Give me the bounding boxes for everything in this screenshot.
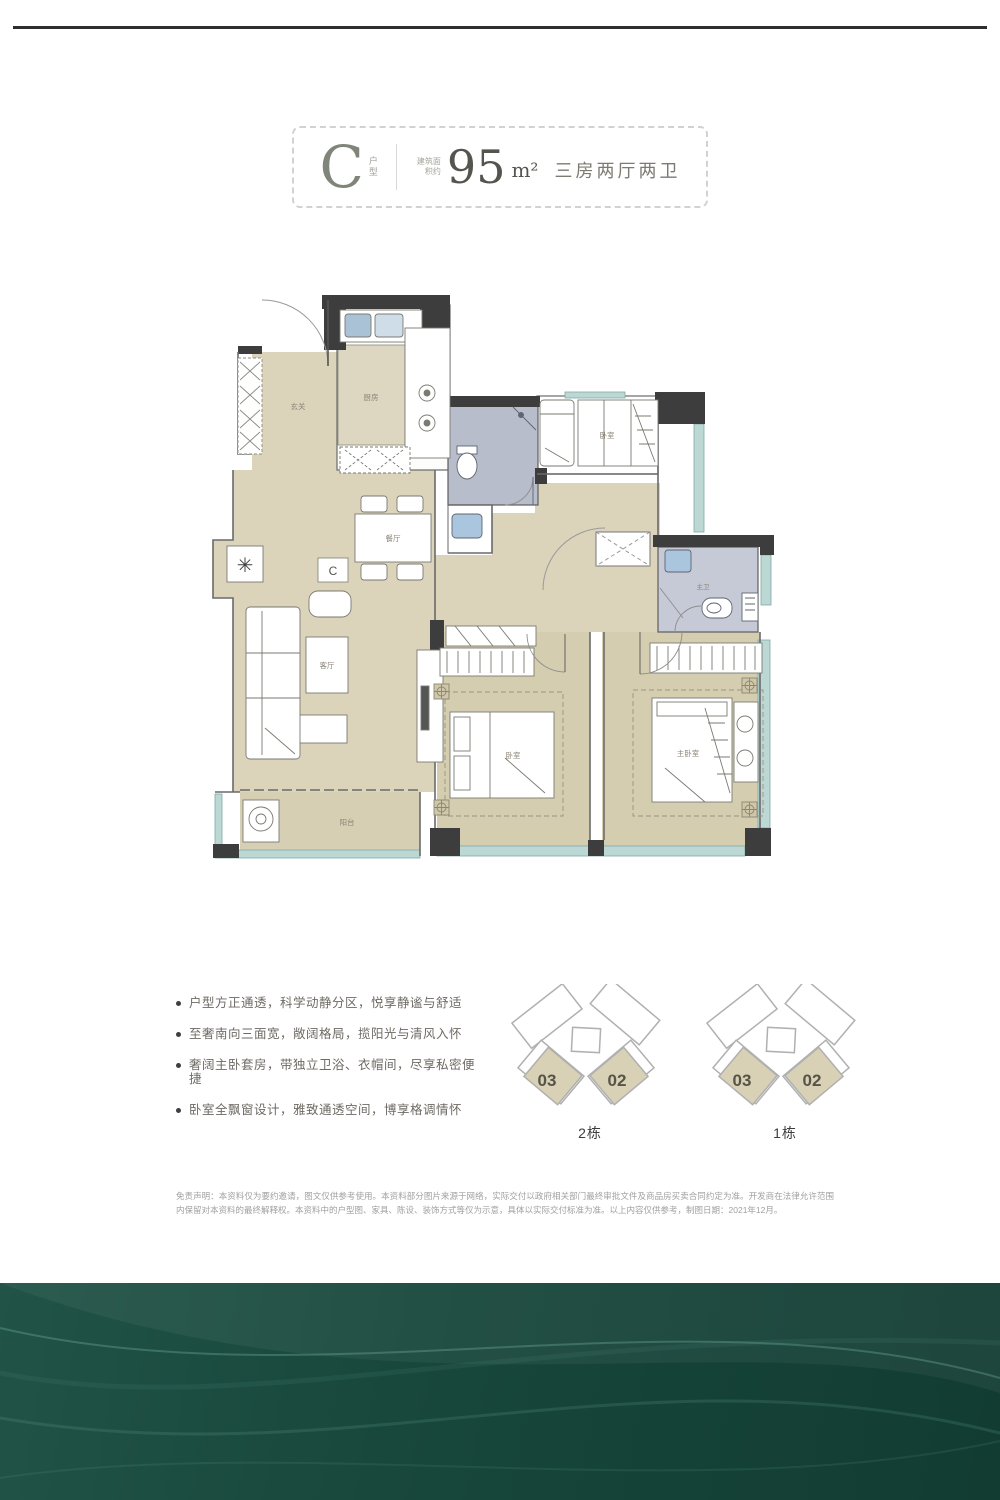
bullet-icon [176, 1108, 181, 1113]
feature-text: 户型方正通透，科学动静分区，悦享静谧与舒适 [189, 996, 462, 1010]
brochure-page: C 户型 建筑面积约 95 m² 三房两厅两卫 [0, 0, 1000, 1500]
washbasin-icon-2 [665, 550, 691, 572]
keyplan-svg: 03 02 [495, 984, 685, 1114]
floor-plan-svg: ✳ [205, 288, 785, 878]
bench-icon [293, 715, 347, 743]
bullet-icon [176, 1032, 181, 1037]
single-bed-icon [540, 400, 574, 466]
disclaimer-text: 免责声明：本资料仅为要约邀请，图文仅供参考使用。本资料部分图片来源于网络，实际交… [176, 1189, 834, 1217]
label-bedroom-mid: 卧室 [506, 750, 521, 760]
label-master-bath: 主卫 [697, 582, 711, 591]
shaft-box [596, 532, 650, 566]
title-divider [396, 144, 397, 190]
window-balcony-bottom [215, 850, 420, 858]
feature-text: 至奢南向三面宽，敞阔格局，揽阳光与清风入怀 [189, 1027, 462, 1041]
sink-icon [345, 314, 371, 337]
closet-icon [578, 400, 658, 466]
feature-item: 卧室全飘窗设计，雅致通透空间，博享格调情怀 [176, 1103, 486, 1117]
area-value: 95 [447, 144, 506, 190]
unit-number-02: 02 [803, 1071, 822, 1090]
layout-description: 三房两厅两卫 [554, 157, 680, 183]
keyplan-building-2: 03 02 2栋 [495, 984, 685, 1143]
unit-number-03: 03 [733, 1071, 752, 1090]
feature-text: 卧室全飘窗设计，雅致通透空间，博享格调情怀 [189, 1103, 462, 1117]
window-right-top [694, 424, 704, 532]
feature-item: 户型方正通透，科学动静分区，悦享静谧与舒适 [176, 996, 486, 1010]
label-bedroom-top: 卧室 [600, 430, 615, 440]
keyplan-caption: 2栋 [495, 1123, 685, 1143]
label-unit-marker: C [329, 564, 338, 578]
desk-icon [734, 702, 758, 782]
sofa-icon [246, 607, 300, 759]
unit-number-02: 02 [608, 1071, 627, 1090]
window-bedroom-top [565, 392, 625, 398]
label-balcony: 阳台 [340, 817, 355, 827]
washbasin-icon [452, 514, 482, 538]
chair-icon [361, 496, 387, 512]
footer-waves [0, 1283, 1000, 1500]
unit-number-03: 03 [538, 1071, 557, 1090]
shoe-cabinet [238, 358, 262, 454]
label-kitchen: 厨房 [364, 392, 379, 402]
keyplan-svg: 03 02 [690, 984, 880, 1114]
label-dining: 餐厅 [386, 534, 401, 543]
area-prefix-label: 建筑面积约 [415, 157, 441, 177]
area-unit: m² [511, 158, 538, 182]
feature-list: 户型方正通透，科学动静分区，悦享静谧与舒适 至奢南向三面宽，敞阔格局，揽阳光与清… [176, 996, 486, 1134]
bullet-icon [176, 1001, 181, 1006]
shower-icon [519, 413, 524, 418]
snowflake-icon: ✳ [237, 555, 254, 577]
armchair-icon [309, 591, 351, 617]
label-master-bedroom: 主卧室 [677, 748, 700, 758]
floor-plan: ✳ [205, 288, 785, 878]
footer-banner [0, 1283, 1000, 1500]
label-living: 客厅 [320, 660, 335, 670]
top-divider-line [13, 26, 987, 29]
feature-item: 至奢南向三面宽，敞阔格局，揽阳光与清风入怀 [176, 1027, 486, 1041]
wardrobe-icon [440, 648, 534, 676]
keyplan-caption: 1栋 [690, 1123, 880, 1143]
bullet-icon [176, 1063, 181, 1068]
washing-machine-icon [243, 800, 279, 842]
window-master-bath [761, 555, 771, 605]
tv-icon [421, 686, 429, 730]
toilet-icon-2 [702, 598, 732, 618]
keyplan-building-1: 03 02 1栋 [690, 984, 880, 1143]
unit-title-box: C 户型 建筑面积约 95 m² 三房两厅两卫 [292, 126, 708, 208]
window-balcony-left [215, 794, 222, 850]
unit-type-label: 户型 [369, 156, 380, 178]
toilet-icon [457, 453, 477, 479]
unit-type-letter: C [320, 138, 364, 196]
label-foyer: 玄关 [291, 401, 306, 411]
feature-text: 奢阔主卧套房，带独立卫浴、衣帽间，尽享私密便捷 [189, 1058, 486, 1086]
balcony-fixtures [243, 800, 279, 842]
feature-item: 奢阔主卧套房，带独立卫浴、衣帽间，尽享私密便捷 [176, 1058, 486, 1086]
